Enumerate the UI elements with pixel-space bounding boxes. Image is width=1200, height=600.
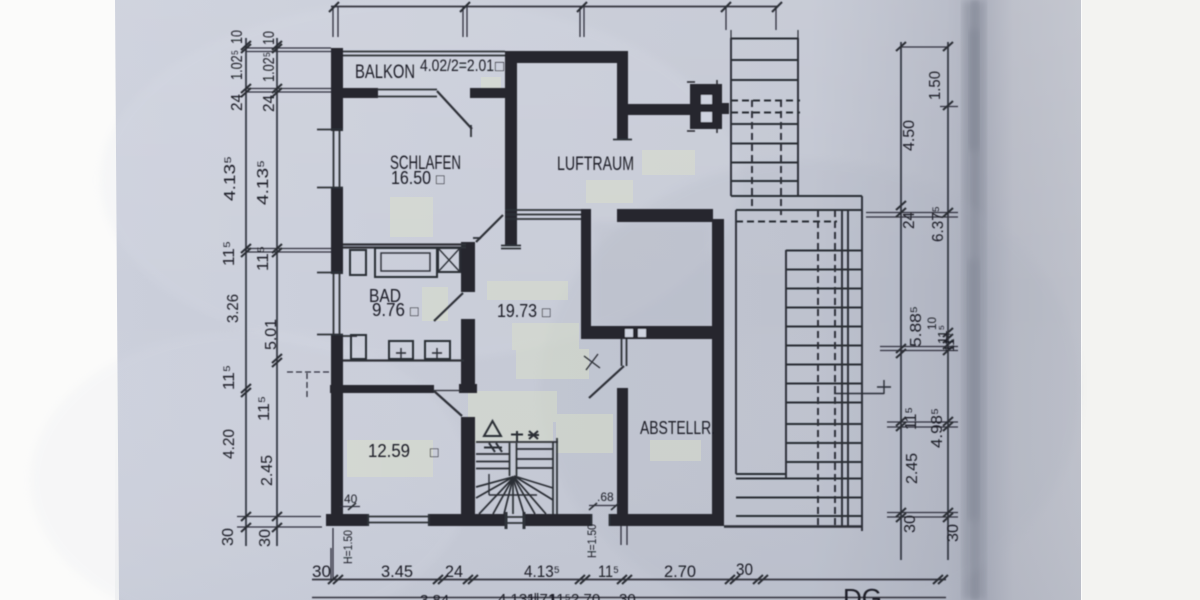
svg-text:4.50: 4.50 xyxy=(901,120,918,151)
svg-text:3.45: 3.45 xyxy=(381,562,413,581)
svg-text:ABSTELLR.: ABSTELLR. xyxy=(640,418,715,438)
svg-text:30: 30 xyxy=(736,560,753,579)
svg-text:□: □ xyxy=(542,304,551,320)
svg-text:24: 24 xyxy=(901,212,918,229)
svg-text:□: □ xyxy=(436,171,445,187)
svg-text:12.59: 12.59 xyxy=(368,441,410,461)
svg-text:24: 24 xyxy=(261,95,278,112)
svg-text:9.76: 9.76 xyxy=(372,300,405,320)
svg-text:.68: .68 xyxy=(597,490,614,504)
svg-text:11⁵: 11⁵ xyxy=(221,365,238,390)
svg-text:40: 40 xyxy=(344,492,358,506)
svg-text:H=1.50: H=1.50 xyxy=(585,524,599,558)
svg-text:3.84: 3.84 xyxy=(420,592,449,600)
svg-text:5.88⁵: 5.88⁵ xyxy=(908,306,925,347)
svg-text:4.02/2=2.01: 4.02/2=2.01 xyxy=(420,56,494,75)
svg-text:4.13⁵: 4.13⁵ xyxy=(524,562,560,581)
svg-text:DG: DG xyxy=(843,583,882,600)
svg-text:4.20: 4.20 xyxy=(221,429,238,459)
svg-text:24: 24 xyxy=(445,562,463,581)
svg-text:4.13⁵: 4.13⁵ xyxy=(255,160,272,205)
svg-text:BALKON: BALKON xyxy=(355,62,415,83)
svg-text:16.50: 16.50 xyxy=(391,168,431,188)
svg-text:30: 30 xyxy=(220,528,237,546)
svg-text:30: 30 xyxy=(945,524,962,542)
svg-text:4.13⁵: 4.13⁵ xyxy=(222,156,239,201)
svg-text:2.45: 2.45 xyxy=(904,453,921,484)
svg-text:1.50: 1.50 xyxy=(927,71,944,100)
svg-text:30: 30 xyxy=(312,562,331,581)
svg-text:11⁵: 11⁵ xyxy=(221,241,238,266)
svg-text:1.02⁵: 1.02⁵ xyxy=(229,50,246,80)
svg-text:□: □ xyxy=(410,303,419,319)
svg-text:H=1.50: H=1.50 xyxy=(341,530,355,564)
svg-text:11⁵: 11⁵ xyxy=(549,591,571,600)
svg-text:□: □ xyxy=(430,444,439,460)
svg-text:2.45: 2.45 xyxy=(259,455,276,486)
svg-text:11⁵: 11⁵ xyxy=(942,333,957,352)
svg-text:11⁵: 11⁵ xyxy=(903,407,920,430)
svg-text:2.70: 2.70 xyxy=(664,562,696,581)
svg-text:11⁵: 11⁵ xyxy=(256,396,273,421)
svg-text:30: 30 xyxy=(257,529,274,547)
svg-text:19.73: 19.73 xyxy=(497,301,537,321)
svg-text:30: 30 xyxy=(902,515,919,533)
svg-text:3.26: 3.26 xyxy=(225,294,242,323)
svg-text:24: 24 xyxy=(229,94,246,111)
svg-text:5.01: 5.01 xyxy=(263,319,280,350)
svg-text:30: 30 xyxy=(619,591,636,600)
svg-text:1.02⁵: 1.02⁵ xyxy=(261,52,278,82)
svg-text:4.98⁵: 4.98⁵ xyxy=(929,408,946,448)
svg-text:□: □ xyxy=(495,58,504,75)
svg-text:2.70: 2.70 xyxy=(571,591,600,600)
svg-text:6.37⁵: 6.37⁵ xyxy=(930,206,947,242)
svg-text:LUFTRAUM: LUFTRAUM xyxy=(557,154,634,175)
svg-text:10: 10 xyxy=(229,30,246,44)
svg-text:11⁵: 11⁵ xyxy=(255,246,272,271)
svg-text:10: 10 xyxy=(261,31,278,45)
svg-text:11⁵: 11⁵ xyxy=(598,562,619,581)
